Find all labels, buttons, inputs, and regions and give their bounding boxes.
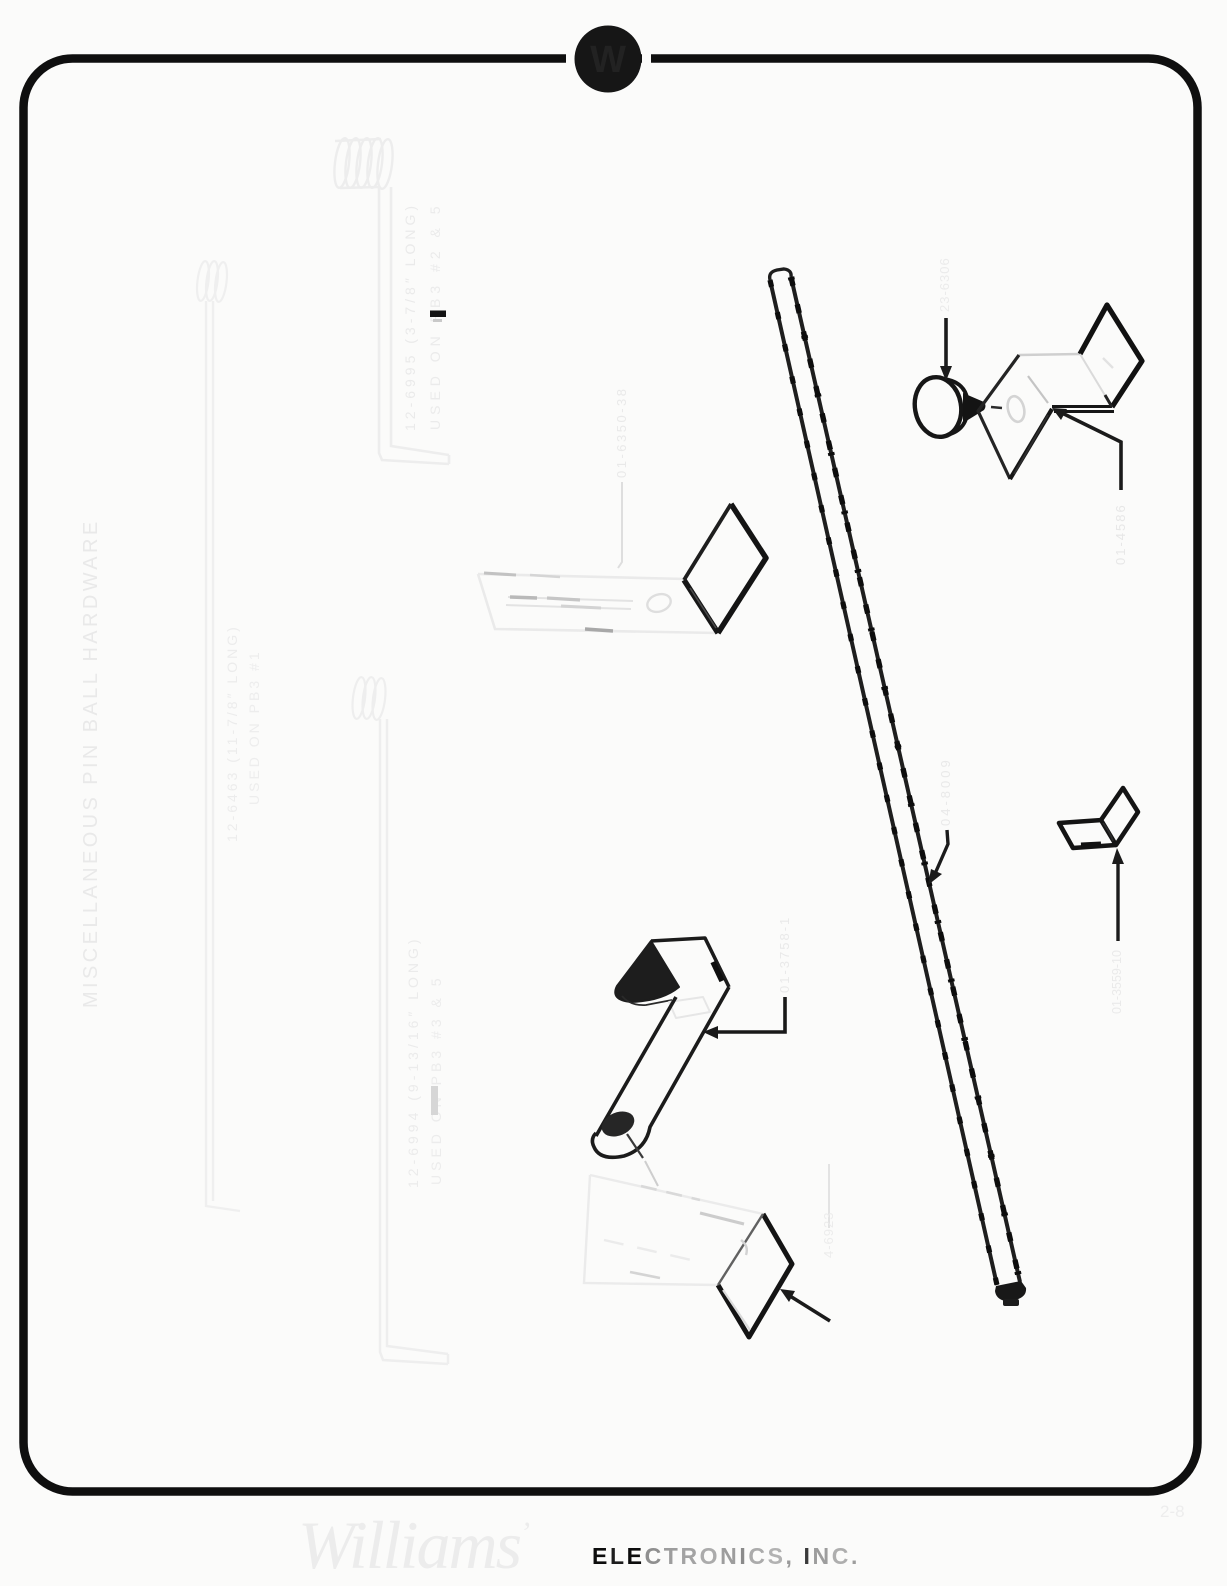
svg-text:04-8009: 04-8009 [938,757,953,826]
svg-text:12-6994 (9-13/16″ LONG): 12-6994 (9-13/16″ LONG) [405,935,421,1188]
svg-text:12-6995 (3-7/8″ LONG): 12-6995 (3-7/8″ LONG) [402,202,418,431]
svg-text:MISCELLANEOUS PIN BALL HARDWAR: MISCELLANEOUS PIN BALL HARDWARE [80,518,102,1008]
svg-text:W: W [590,39,626,81]
svg-text:01-4586: 01-4586 [1113,503,1128,565]
svg-text:Williams’: Williams’ [298,1507,530,1583]
svg-text:12-6463 (11-7/8″ LONG): 12-6463 (11-7/8″ LONG) [224,624,240,842]
svg-text:01-6350-38: 01-6350-38 [614,387,629,479]
svg-text:USED ON PB3 #1: USED ON PB3 #1 [246,649,262,805]
svg-text:2-8: 2-8 [1160,1502,1185,1521]
svg-text:01-3758-1: 01-3758-1 [777,916,792,993]
svg-text:USED ON PB3 #3 & 5: USED ON PB3 #3 & 5 [428,974,444,1185]
svg-text:ELECTRONICS, INC.: ELECTRONICS, INC. [592,1543,860,1569]
svg-text:23-6306: 23-6306 [937,257,952,312]
svg-text:4-6923: 4-6923 [821,1212,836,1258]
svg-text:01-3559-10: 01-3559-10 [1110,950,1124,1014]
